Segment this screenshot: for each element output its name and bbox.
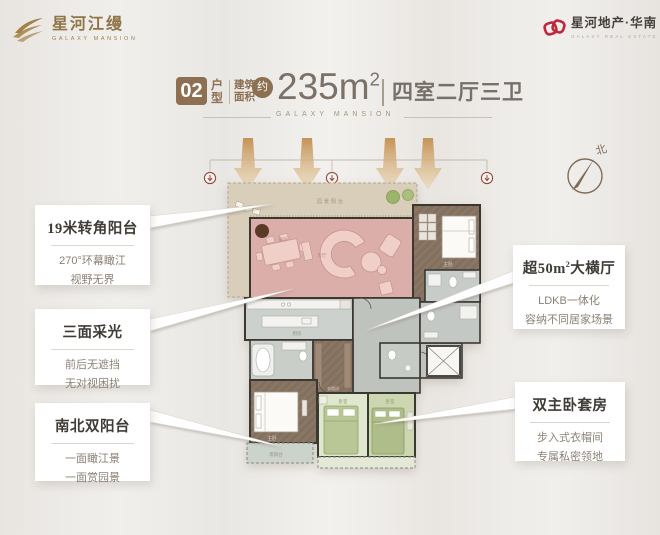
floorplan-poster: 园景阳台 — [0, 0, 660, 535]
room-bedroom2: 主卧 — [413, 205, 480, 302]
desk — [407, 412, 413, 430]
bathtub — [256, 348, 270, 372]
unit-type-label: 户型 — [211, 79, 225, 104]
compass-north-label: 北 — [594, 142, 608, 158]
room-label: 主卧 — [443, 261, 453, 268]
side-table — [379, 281, 394, 296]
divider — [530, 422, 609, 423]
floor-plan: 园景阳台 — [228, 183, 480, 468]
plant-icon — [387, 191, 400, 204]
approx-badge: 约 — [252, 77, 273, 98]
brand-logo: 星河江缦 GALAXY MANSION — [12, 16, 138, 42]
round-table — [255, 224, 269, 238]
room-label: 卧室 — [386, 398, 395, 405]
island-counter — [262, 316, 318, 327]
divider — [382, 79, 384, 106]
callout-title: 三面采光 — [35, 321, 150, 342]
view-arrows — [234, 138, 442, 190]
divider — [229, 80, 230, 104]
watermark-line — [203, 117, 271, 118]
room-label: 衣帽间 — [327, 385, 339, 391]
room-kitchen: 厨房 — [245, 298, 353, 340]
down-arrow-icon — [293, 138, 321, 190]
callout-line: 步入式衣帽间 — [515, 429, 625, 448]
callout-line: LDKB一体化 — [513, 292, 625, 311]
room-label: 厨房 — [293, 330, 302, 337]
room-label: 客厅 — [318, 252, 327, 259]
wing-icon — [12, 16, 46, 42]
room-label: 主卧 — [267, 435, 277, 442]
watermark-text: GALAXY MANSION — [276, 111, 395, 118]
watermark-line — [404, 117, 492, 118]
callout-line: 无对视困扰 — [35, 375, 150, 394]
divider — [51, 443, 134, 444]
callout-double-balcony: 南北双阳台 一面瞰江景 一面赏园景 — [35, 403, 150, 481]
callout-grand-hall: 超50m2大横厅 LDKB一体化 容纳不同居家场景 — [513, 245, 625, 329]
callout-line: 容纳不同居家场景 — [513, 311, 625, 330]
unit-number-badge: 02 — [176, 77, 207, 105]
room-label: 卧室 — [339, 398, 348, 405]
divider — [51, 245, 134, 246]
room-bedroom4: 卧室 — [368, 393, 415, 457]
room-master-bath — [250, 340, 313, 380]
developer-name-en: GALAXY REAL ESTATE — [571, 34, 658, 39]
brand-name-en: GALAXY MANSION — [52, 36, 138, 42]
room-label: 南阳台 — [269, 451, 283, 458]
divider — [529, 285, 610, 286]
plant-icon — [403, 190, 414, 201]
room-bedroom3: 卧室 — [318, 393, 368, 457]
elevator — [427, 346, 460, 376]
fridge — [340, 300, 351, 309]
down-arrow-marker — [481, 172, 492, 183]
brand-name: 星河江缦 — [52, 16, 138, 34]
callout-three-side-light: 三面采光 前后无遮挡 无对视困扰 — [35, 309, 150, 385]
callout-title: 双主卧套房 — [515, 394, 625, 415]
room-living-dining: 餐厅 客厅 — [250, 218, 413, 298]
divider — [51, 349, 134, 350]
callout-line: 专属私密领地 — [515, 448, 625, 467]
down-arrow-marker — [326, 172, 337, 183]
callout-title: 超50m2大横厅 — [513, 257, 625, 278]
room-label: 园景阳台 — [317, 198, 345, 205]
developer-logo: 星河地产·华南 GALAXY REAL ESTATE — [543, 17, 658, 39]
developer-name: 星河地产·华南 — [571, 17, 658, 31]
callout-master-suites: 双主卧套房 步入式衣帽间 专属私密领地 — [515, 382, 625, 461]
area-value: 235m2 — [277, 66, 380, 108]
bottom-balcony — [318, 457, 415, 468]
callout-title: 19米转角阳台 — [35, 217, 150, 238]
callout-line: 前后无遮挡 — [35, 356, 150, 375]
room-count-text: 四室二厅三卫 — [392, 76, 524, 106]
bench — [302, 400, 307, 416]
down-arrow-icon — [414, 138, 442, 190]
callout-line: 视野无界 — [35, 271, 150, 290]
room-label: 餐厅 — [279, 236, 288, 243]
callout-corner-balcony: 19米转角阳台 270°环幕瞰江 视野无界 — [35, 205, 150, 285]
galaxy-knot-icon — [543, 17, 566, 38]
room-bath3 — [380, 343, 420, 378]
down-arrow-icon — [234, 138, 262, 190]
callout-line: 一面赏园景 — [35, 469, 150, 488]
down-arrow-icon — [376, 138, 404, 190]
callout-line: 270°环幕瞰江 — [35, 252, 150, 271]
down-arrow-marker — [204, 172, 215, 183]
callout-line: 一面瞰江景 — [35, 450, 150, 469]
callout-title: 南北双阳台 — [35, 415, 150, 436]
compass-icon: 北 — [568, 142, 608, 193]
